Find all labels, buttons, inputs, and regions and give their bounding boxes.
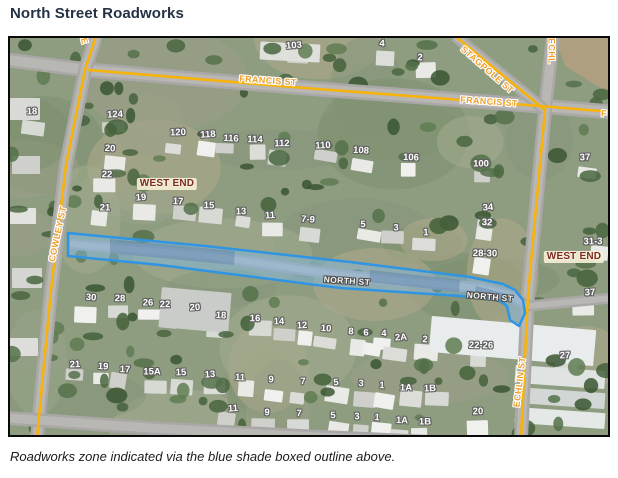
house-number: 114 (247, 135, 262, 145)
house-number: 2 (417, 53, 422, 63)
house-number: 8 (348, 327, 354, 337)
house-number: 7-9 (301, 215, 315, 225)
house-number: 34 (482, 203, 493, 213)
cowley-st-label: COWLEY ST (48, 205, 69, 262)
house-number: 3 (358, 379, 364, 389)
house-number: 1A (400, 383, 412, 393)
north-st-label-2: NORTH ST (466, 291, 513, 304)
house-number: 37 (584, 288, 595, 298)
house-number: 3 (393, 223, 398, 233)
house-number: 15 (204, 201, 215, 211)
house-number: 22 (160, 300, 171, 310)
house-number: 32 (481, 218, 492, 228)
house-number: 6 (363, 328, 368, 338)
house-number: 11 (265, 211, 276, 221)
house-number: 5 (333, 378, 339, 388)
house-number: 120 (170, 128, 186, 138)
house-number: 18 (27, 107, 38, 117)
house-number: 26 (143, 298, 154, 308)
house-number: 106 (403, 153, 419, 163)
house-number: 17 (120, 365, 131, 375)
north-st-label-1: NORTH ST (323, 275, 370, 287)
house-number: 110 (315, 141, 331, 151)
house-number: 1 (379, 381, 385, 391)
house-number: 100 (473, 159, 489, 169)
house-number: 112 (274, 139, 289, 149)
house-number: 7 (296, 409, 301, 419)
francis-st-label-clipped: F (601, 109, 607, 118)
house-number: 116 (223, 134, 239, 144)
house-number: 4 (379, 39, 385, 49)
house-number: 108 (353, 146, 369, 157)
house-number: 1A (396, 416, 408, 426)
house-number: 9 (268, 375, 273, 385)
house-number: 21 (100, 203, 111, 213)
roadworks-map: FRANCIS STFRANCIS STFCOWLEY STSTAGPOLE S… (8, 36, 610, 437)
map-caption: Roadworks zone indicated via the blue sh… (10, 449, 395, 464)
house-number: 1 (423, 228, 429, 238)
francis-st-label-1: FRANCIS ST (239, 75, 297, 88)
house-number: 5 (360, 220, 366, 230)
west-end-label-2: WEST END (544, 251, 604, 263)
house-number: 20 (189, 303, 200, 313)
house-number: 124 (107, 110, 123, 120)
house-number: 19 (135, 193, 146, 203)
house-number: 31-3 (583, 237, 602, 247)
house-number: 2A (395, 333, 408, 343)
house-number: 18 (215, 311, 226, 321)
street-label-fragment: E (79, 37, 89, 45)
house-number: 13 (204, 370, 215, 380)
house-number: 1B (424, 384, 436, 394)
house-number: 12 (296, 321, 307, 331)
house-number: 3 (354, 412, 360, 422)
house-number: 2 (422, 335, 428, 345)
house-number: 30 (85, 293, 96, 303)
house-number: 28 (115, 294, 126, 304)
house-number: 20 (473, 407, 484, 417)
house-number: 13 (236, 207, 247, 217)
house-number: 14 (274, 317, 285, 327)
house-number: 103 (286, 41, 302, 52)
house-number: 20 (104, 144, 115, 154)
house-number: 17 (172, 197, 183, 207)
house-number: 22-26 (469, 341, 493, 351)
page-title: North Street Roadworks (10, 5, 184, 22)
echlin-st-label-top: ECHL (547, 38, 556, 64)
west-end-label-1: WEST END (137, 178, 197, 190)
house-number: 1B (419, 417, 431, 427)
house-number: 11 (228, 404, 239, 414)
francis-st-label-2: FRANCIS ST (460, 96, 518, 109)
house-number: 16 (250, 314, 261, 324)
house-number: 22 (102, 170, 113, 180)
house-number: 27 (560, 351, 571, 361)
house-number: 15 (176, 368, 187, 378)
house-number: 7 (300, 377, 305, 387)
stagpole-st-label: STAGPOLE ST (459, 45, 515, 96)
map-labels-layer: FRANCIS STFRANCIS STFCOWLEY STSTAGPOLE S… (10, 38, 608, 435)
house-number: 1 (374, 413, 380, 423)
page: North Street Roadworks FRANCIS STFRANCIS… (0, 0, 618, 478)
house-number: 118 (200, 130, 216, 141)
house-number: 21 (69, 360, 80, 370)
house-number: 11 (235, 373, 246, 383)
house-number: 4 (381, 329, 387, 339)
echlin-st-label: ECHLIN ST (512, 356, 527, 407)
house-number: 28-30 (473, 249, 497, 259)
house-number: 15A (143, 367, 160, 377)
house-number: 9 (264, 408, 270, 418)
house-number: 37 (580, 153, 591, 163)
house-number: 19 (97, 362, 108, 372)
house-number: 5 (330, 411, 335, 421)
house-number: 10 (320, 324, 331, 334)
